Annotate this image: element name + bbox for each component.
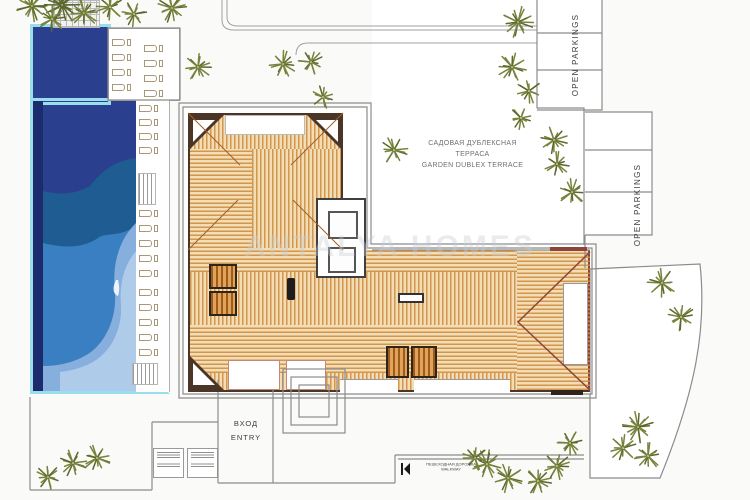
walkway-sign-en: WALKWAY [416,467,486,472]
entry-steps [299,385,329,417]
entry-label: ВХОД ENTRY [218,417,274,446]
tree-icon [299,52,322,74]
tree-icon [518,81,539,103]
tree-icon [668,306,692,331]
tree-icon [623,412,653,443]
tree-icon [71,0,97,24]
site-boundaries [30,0,652,490]
garden-terrace-label-en: GARDEN DUBLEX TERRACE [405,161,540,172]
tree-icon [529,470,552,493]
entry-label-ru: ВХОД [218,417,274,431]
parking-top-edge [537,0,602,110]
tree-icon [495,465,521,493]
tree-icon [545,152,569,175]
tree-icon [158,0,186,22]
tree-icon [561,179,583,202]
open-parkings-label-top: OPEN PARKINGS [571,0,583,110]
tree-icon [647,269,674,298]
walkway-arrow-icon [401,463,410,475]
tree-icon [313,86,332,108]
tree-icon [545,455,569,479]
walkway-sign: ПЕШЕХОДНАЯ ДОРОЖКА WALKWAY [416,462,486,472]
tree-icon [37,467,58,490]
open-parkings-label-right: OPEN PARKINGS [633,150,645,260]
tree-icon [122,3,146,26]
garden-terrace-label-ru1: САДОВАЯ ДУБЛЕКСНАЯ [405,139,540,150]
trees [17,0,693,493]
tree-icon [61,450,87,475]
roof-hip-seams [518,247,590,395]
tree-icon [269,51,294,76]
driveway-kerbs [222,0,537,55]
tree-icon [635,443,659,467]
tree-icon [557,432,581,455]
tree-icon [86,446,109,470]
tree-icon [541,127,567,153]
tree-icon [499,53,526,80]
tree-icon [513,109,531,129]
tree-icon [186,54,211,79]
roof-seams [188,113,343,250]
site-plan: САДОВАЯ ДУБЛЕКСНАЯ ТЕРРАСА GARDEN DUBLEX… [0,0,750,500]
tree-icon [17,0,47,22]
entry-steps [291,377,337,425]
upper-deck-outline [108,28,180,100]
roof-corner-marks [188,113,343,392]
tree-icon [504,7,533,37]
garden-terrace-label-ru2: ТЕРРАСА [405,150,540,161]
parking-top-dividers [537,33,602,70]
tree-icon [96,0,121,20]
garden-terrace-label: САДОВАЯ ДУБЛЕКСНАЯ ТЕРРАСА GARDEN DUBLEX… [405,139,540,172]
entry-label-en: ENTRY [218,431,274,445]
entry-steps [283,369,345,433]
tree-icon [383,138,407,162]
